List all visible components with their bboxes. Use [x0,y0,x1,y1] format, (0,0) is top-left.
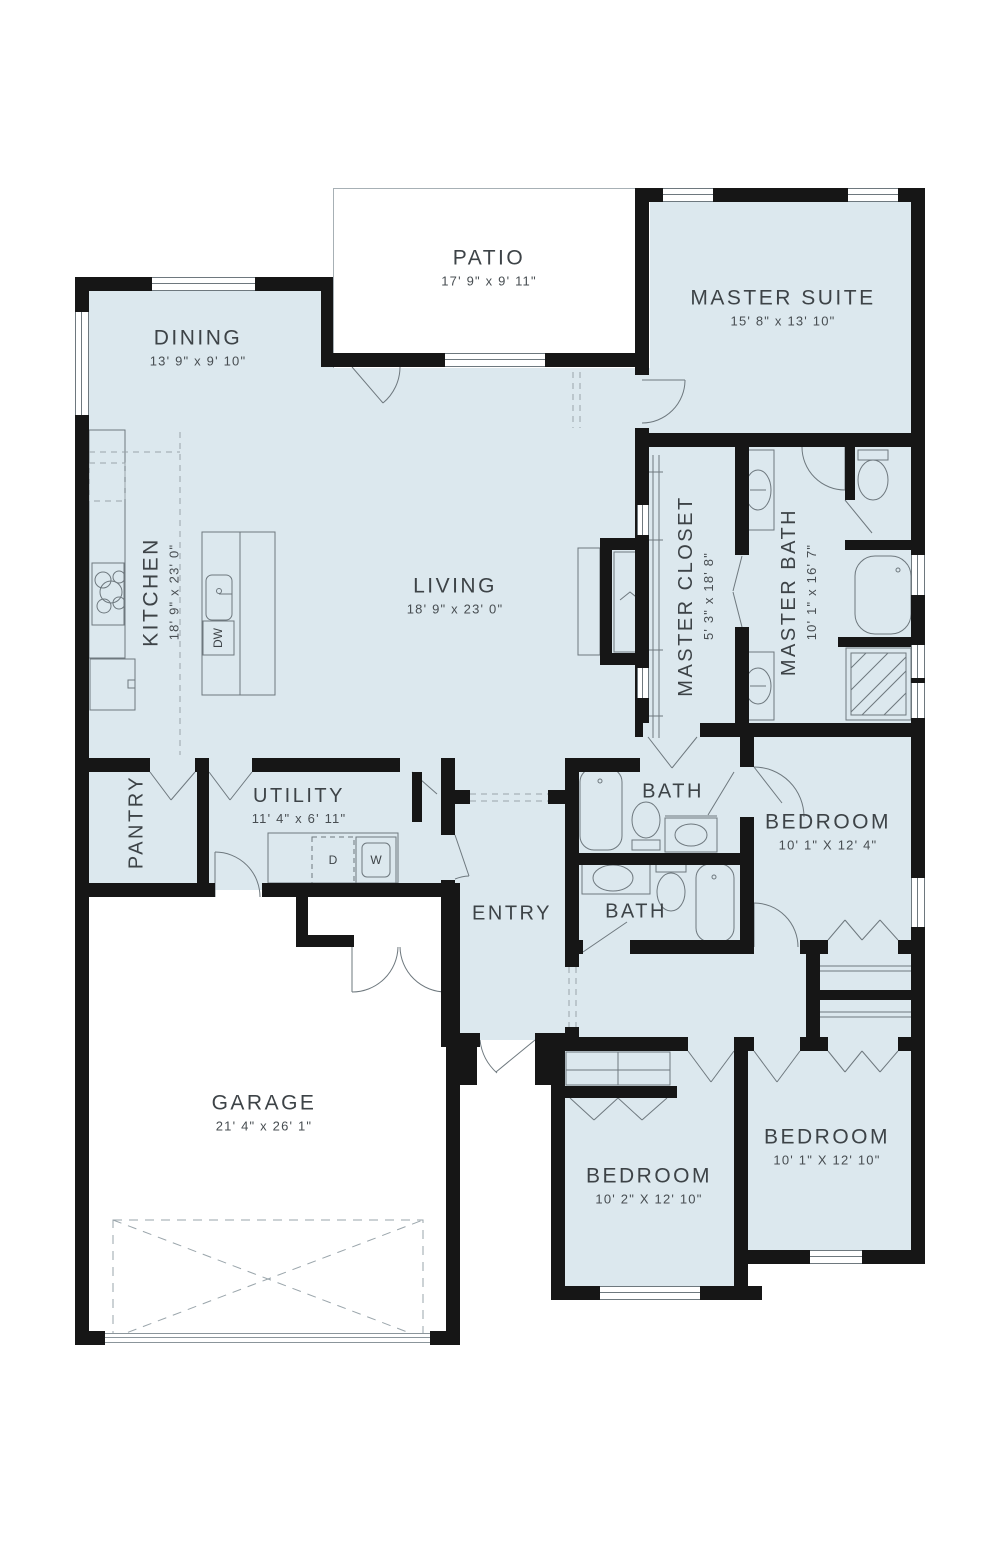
window-master-1 [663,188,713,202]
garage-double-doors [352,947,446,992]
water-closet-door [845,500,872,533]
room-patio: PATIO 17' 9" x 9' 11" [441,246,537,289]
garage-parking-x [113,1220,423,1338]
room-bedroom-right: BEDROOM 10' 1" X 12' 4" [765,810,891,853]
kitchen-counter [89,430,125,658]
room-master-bath: MASTER BATH 10' 1" x 16' 7" [778,508,820,676]
window-fireplace-top [637,505,649,535]
dryer-label: D [329,853,338,867]
window-fireplace-bottom [637,668,649,698]
garage-entry-door [455,835,469,879]
room-bath-top: BATH [642,781,704,804]
bath-bottom-door [583,922,627,952]
room-master-suite: MASTER SUITE 15' 8" x 13' 10" [690,286,875,329]
room-living: LIVING 18' 9" x 23' 0" [407,574,504,617]
room-master-closet: MASTER CLOSET 5' 3" x 18' 8" [675,495,717,696]
window-patio-slider [445,353,545,367]
patio-door [352,367,400,403]
utility-door-bottom [215,852,260,897]
fixtures-layer [0,0,1000,1545]
window-bedroom-mid [600,1286,700,1300]
room-bath-bottom: BATH [605,901,667,924]
room-kitchen: KITCHEN 18' 9" x 23' 0" [139,537,182,647]
window-mbath-2 [911,645,925,678]
room-utility: UTILITY 11' 4" x 6' 11" [252,785,347,827]
bath-bottom-tub [696,864,734,942]
room-garage: GARAGE 21' 4" x 26' 1" [212,1091,317,1134]
bath-top-door [708,772,734,815]
refrigerator [90,659,135,710]
master-closet-door [648,737,697,768]
bedroom-mid-door [688,1051,734,1082]
master-closet-shelves [649,455,663,738]
window-bedroom-right [911,878,925,927]
master-bath-tub [855,556,911,634]
room-pantry: PANTRY [126,775,149,869]
dashed-openings [470,372,580,1027]
window-master-2 [848,188,898,202]
floor-plan: PATIO 17' 9" x 9' 11" MASTER SUITE 15' 8… [0,0,1000,1545]
window-bedroom-br [810,1250,862,1264]
master-hall-door [802,447,845,490]
bath-bottom-vanity [582,862,650,894]
master-closet-bath-door [733,556,742,627]
bedroom-br-door [754,1051,800,1082]
bath-top-vanity [665,816,717,852]
master-bath-shower [846,648,911,720]
closet-bifold-bottom [828,1051,898,1072]
room-bedroom-bottom-right: BEDROOM 10' 1" X 12' 10" [764,1125,890,1168]
front-door [480,1040,535,1073]
bath-top-toilet [632,802,660,850]
bath-top-tub [580,768,622,850]
window-dining-top [152,277,255,291]
closet-bifold-top [828,920,898,940]
bedroom-right-door [754,903,798,947]
dishwasher-label: DW [211,628,225,648]
master-suite-door [642,380,685,423]
window-dining-left [75,312,89,415]
master-bath-toilet [858,450,888,500]
window-mbath-3 [911,683,925,718]
window-mbath-1 [911,555,925,595]
garage-door [105,1333,430,1343]
utility-door-top [209,772,252,800]
pantry-door [150,772,195,800]
room-dining: DINING 13' 9" x 9' 10" [150,326,247,369]
kitchen-island [202,532,275,695]
washer-label: W [370,853,381,867]
room-entry: ENTRY [472,903,552,926]
room-bedroom-mid: BEDROOM 10' 2" X 12' 10" [586,1164,712,1207]
